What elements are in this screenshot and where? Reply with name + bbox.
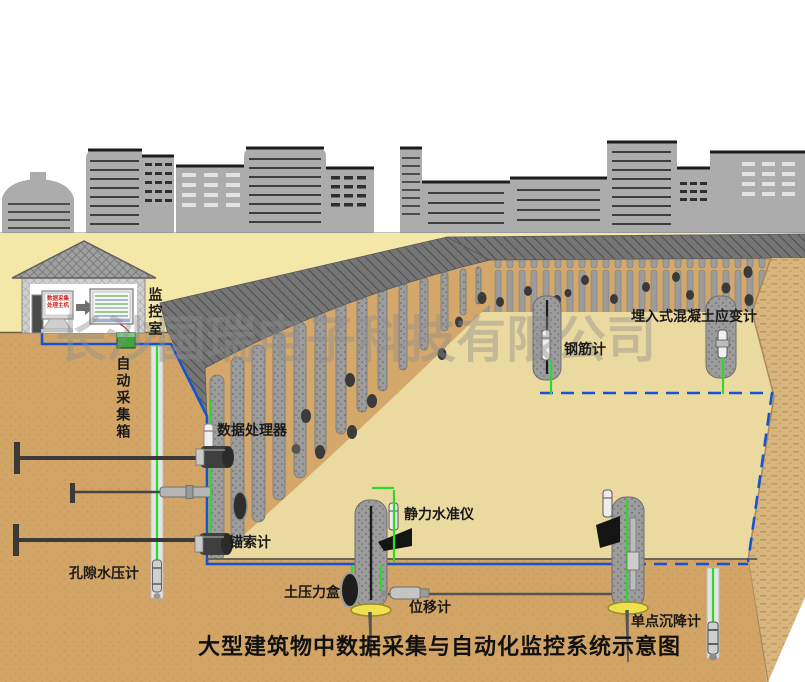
label-monitoring-room: 监控室 — [146, 287, 161, 338]
schematic-diagram: 长沙国瑞电子科技有限公司 大型建筑物中数据采集与自动化监控系统示意图 监控室 自… — [0, 0, 805, 682]
label-data-processor: 数据处理器 — [217, 424, 287, 439]
label-earth-pressure-cell: 土压力盒 — [284, 586, 340, 601]
anchor-load-cell-upper — [196, 446, 234, 468]
pore-pressure-borehole — [151, 346, 163, 599]
anchor-head-disc — [233, 492, 247, 520]
right-borehole — [707, 568, 719, 661]
label-displacement-meter: 位移计 — [409, 601, 451, 616]
diagram-title: 大型建筑物中数据采集与自动化监控系统示意图 — [198, 629, 681, 661]
monitor-screen-text-line1: 数据采集 — [47, 296, 69, 302]
label-pore-water-pressure-gauge: 孔隙水压计 — [69, 567, 139, 582]
monitor-screen-text-line2: 处理主机 — [47, 303, 69, 309]
label-auto-collection-box: 自动采集箱 — [114, 356, 129, 441]
data-processor-sensor — [204, 424, 213, 448]
anchor-load-cell-lower — [195, 533, 233, 555]
label-embedded-concrete-strain-gauge: 埋入式混凝土应变计 — [631, 310, 757, 325]
label-static-level-gauge: 静力水准仪 — [404, 508, 474, 523]
earth-pressure-cell-disc — [341, 573, 359, 607]
label-rebar-gauge: 钢筋计 — [564, 343, 606, 358]
house-door — [32, 295, 43, 333]
label-anchor-cable-gauge: 锚索计 — [229, 536, 271, 551]
berm-rear — [447, 234, 805, 260]
small-disc — [292, 444, 301, 454]
label-single-point-settlement-gauge: 单点沉降计 — [631, 615, 701, 630]
